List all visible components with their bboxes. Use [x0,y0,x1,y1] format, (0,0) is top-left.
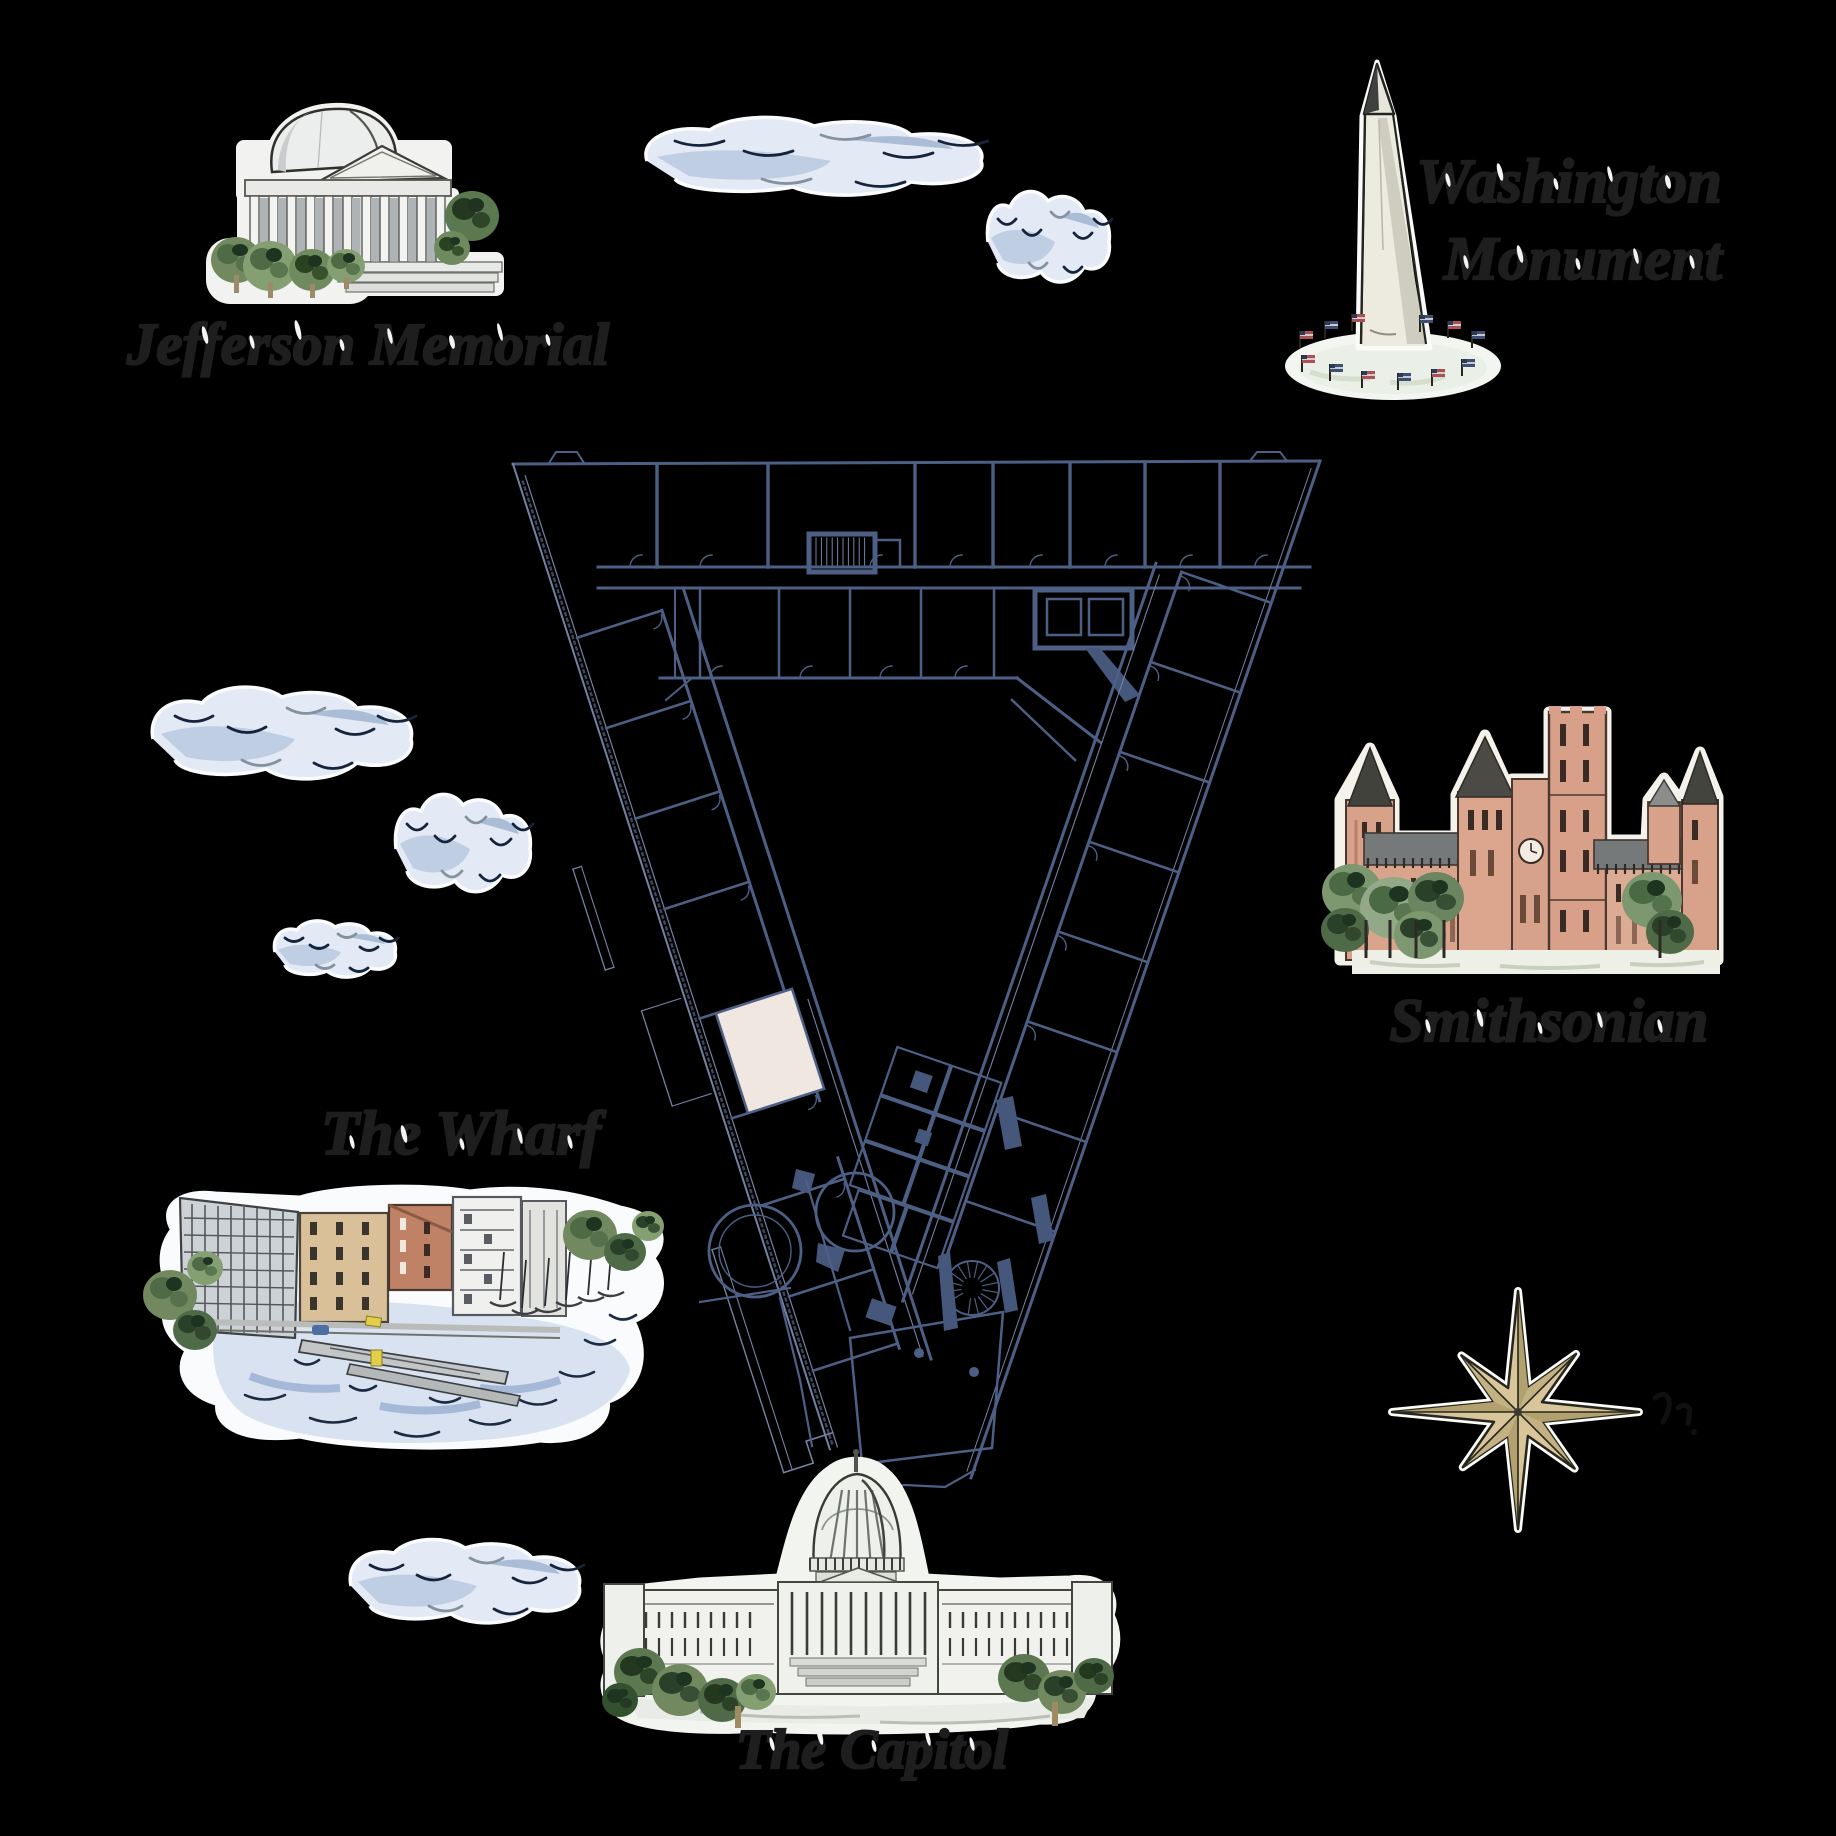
svg-text:Jefferson Memorial: Jefferson Memorial [126,311,610,377]
svg-text:Monument: Monument [1443,226,1724,293]
svg-text:The Capitol: The Capitol [736,1719,1009,1781]
svg-text:Smithsonian: Smithsonian [1390,988,1709,1055]
svg-text:Washington: Washington [1416,148,1722,216]
svg-text:The Wharf: The Wharf [321,1100,606,1168]
